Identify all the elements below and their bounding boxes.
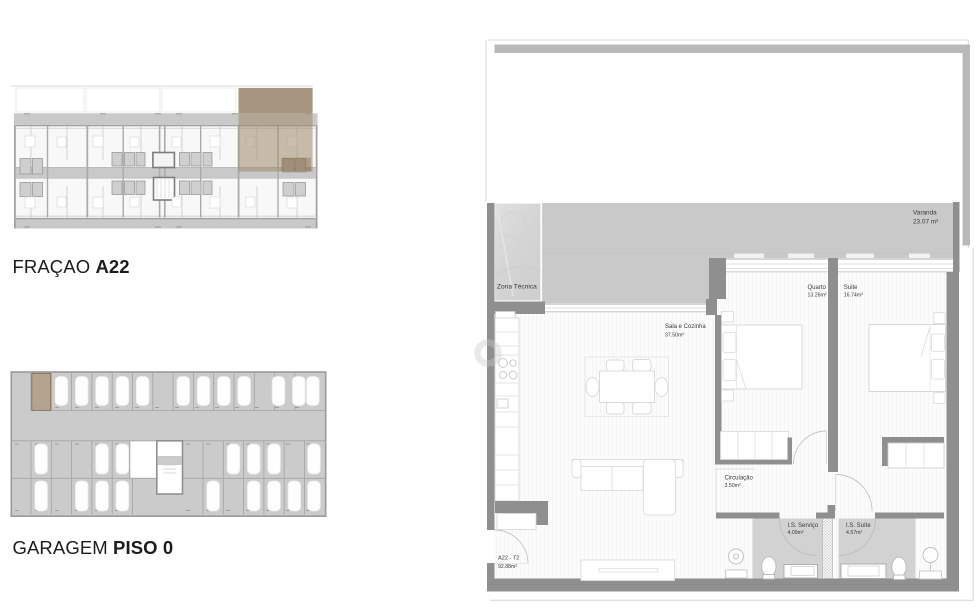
svg-text:13.26m²: 13.26m² xyxy=(808,293,827,299)
svg-text:3.50m²: 3.50m² xyxy=(725,483,741,489)
svg-text:37.50m²: 37.50m² xyxy=(665,333,684,339)
svg-text:16.74m²: 16.74m² xyxy=(844,293,863,299)
svg-text:Varanda: Varanda xyxy=(913,210,937,217)
svg-text:A22 - T2: A22 - T2 xyxy=(498,556,519,562)
svg-text:Suite: Suite xyxy=(844,285,858,291)
svg-text:23.07 m²: 23.07 m² xyxy=(913,219,938,226)
svg-text:I.S. Suíte: I.S. Suíte xyxy=(846,523,871,529)
svg-text:4.09m²: 4.09m² xyxy=(788,530,804,536)
svg-text:Circulação: Circulação xyxy=(725,476,754,482)
svg-text:I.S. Serviço: I.S. Serviço xyxy=(788,523,819,529)
svg-text:Zona Técnica: Zona Técnica xyxy=(497,284,537,291)
svg-text:4.57m²: 4.57m² xyxy=(846,530,862,536)
svg-text:92.88m²: 92.88m² xyxy=(498,564,517,570)
svg-text:Sala e Cozinha: Sala e Cozinha xyxy=(665,324,706,330)
svg-text:Quarto: Quarto xyxy=(808,285,827,291)
